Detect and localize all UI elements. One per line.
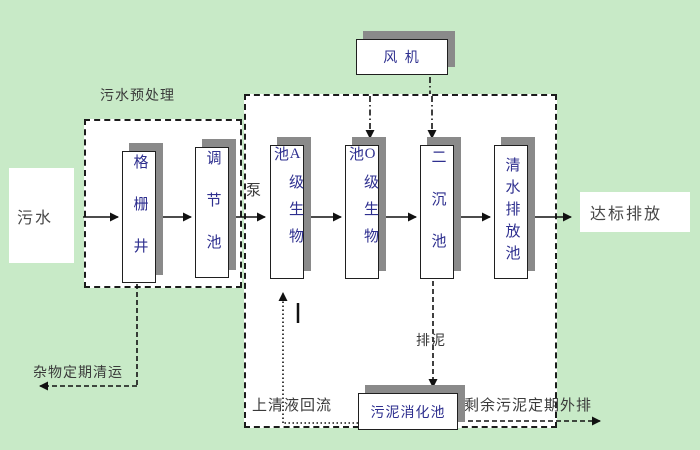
o-bio-tank-box: O级生物池	[345, 145, 379, 279]
secondary-sedimentation-tank-box: 二沉池	[420, 145, 454, 279]
a-bio-tank-box: A级生物池	[270, 145, 304, 279]
fan-box: 风 机	[356, 39, 448, 75]
sludge-digestion-tank-box: 污泥消化池	[358, 393, 458, 430]
flow-diagram: 污水预处理 泵 杂物定期清运 上清液回流 排泥 剩余污泥定期外排 污水 达标排放…	[0, 0, 700, 450]
debris-removal-label: 杂物定期清运	[33, 366, 123, 383]
influent-block: 污水	[9, 168, 74, 263]
pretreatment-zone-label: 污水预处理	[100, 89, 175, 106]
regulating-tank-box: 调节池	[195, 147, 229, 278]
supernatant-return-label: 上清液回流	[252, 397, 332, 415]
clear-water-tank-box: 清水排放池	[494, 145, 528, 279]
excess-sludge-label: 剩余污泥定期外排	[464, 397, 592, 415]
effluent-block: 达标排放	[580, 192, 690, 232]
pump-label: 泵	[246, 182, 262, 200]
grid-well-box: 格栅井	[122, 151, 156, 283]
sludge-drain-label: 排泥	[416, 334, 446, 351]
